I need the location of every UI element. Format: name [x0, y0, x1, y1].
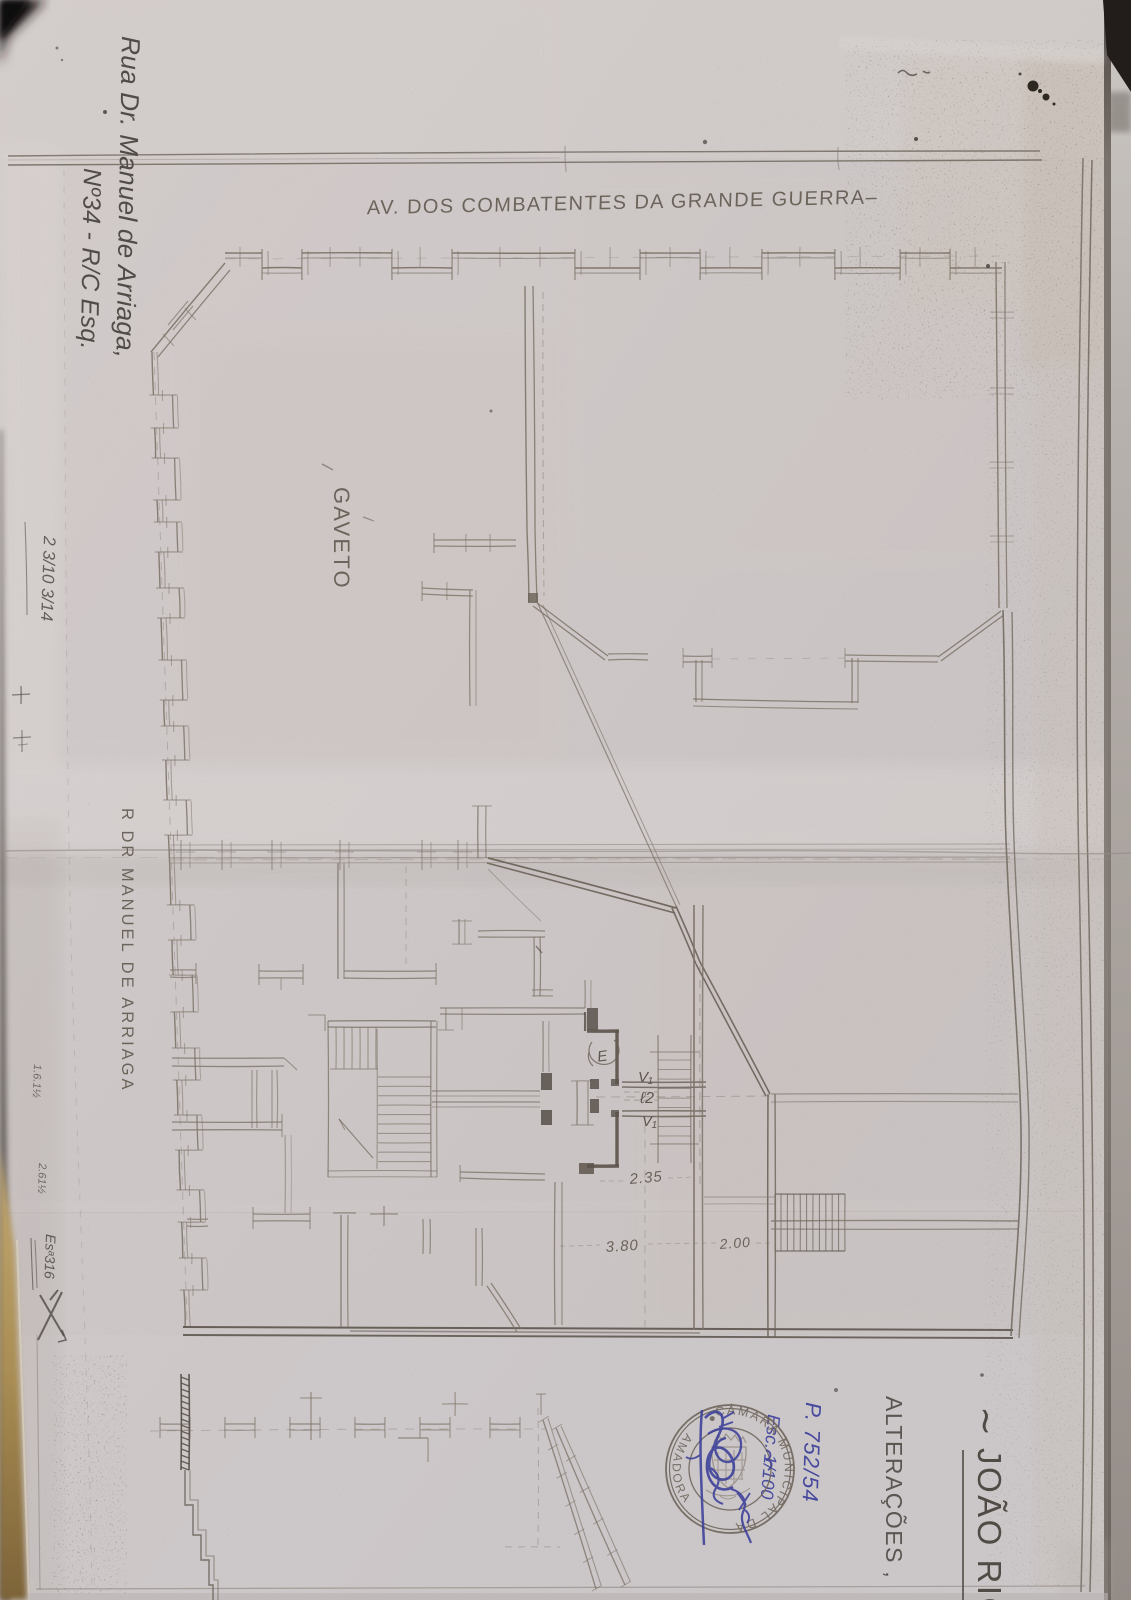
svg-text:2.61½: 2.61½: [35, 1162, 48, 1194]
svg-text:∼: ∼: [966, 1406, 1007, 1436]
svg-text:JOÃO RIC: JOÃO RIC: [971, 1448, 1008, 1600]
svg-text:V₁: V₁: [638, 1069, 653, 1086]
svg-text:1.6.1½: 1.6.1½: [30, 1064, 43, 1098]
svg-text:GAVETO: GAVETO: [329, 487, 354, 590]
svg-text:ℓ2: ℓ2: [639, 1090, 654, 1107]
svg-text:3.80: 3.80: [605, 1237, 639, 1256]
svg-text:2 3/10 3/14: 2 3/10 3/14: [37, 535, 59, 622]
svg-text:ALTERAÇÕES ‚: ALTERAÇÕES ‚: [881, 1396, 908, 1578]
svg-text:P. 752/54: P. 752/54: [798, 1402, 826, 1503]
svg-text:V₁: V₁: [642, 1113, 657, 1130]
svg-text:R DR MANUEL DE ARRIAGA: R DR MANUEL DE ARRIAGA: [118, 808, 136, 1093]
svg-text:Esᵃ316: Esᵃ316: [41, 1234, 59, 1279]
svg-text:2.00: 2.00: [718, 1234, 751, 1252]
svg-text:2.35: 2.35: [628, 1168, 664, 1188]
svg-text:Rua Dr. Manuel de Arriaga,: Rua Dr. Manuel de Arriaga,: [110, 36, 146, 359]
svg-text:Nº34 - R/C Esq.: Nº34 - R/C Esq.: [75, 168, 106, 350]
